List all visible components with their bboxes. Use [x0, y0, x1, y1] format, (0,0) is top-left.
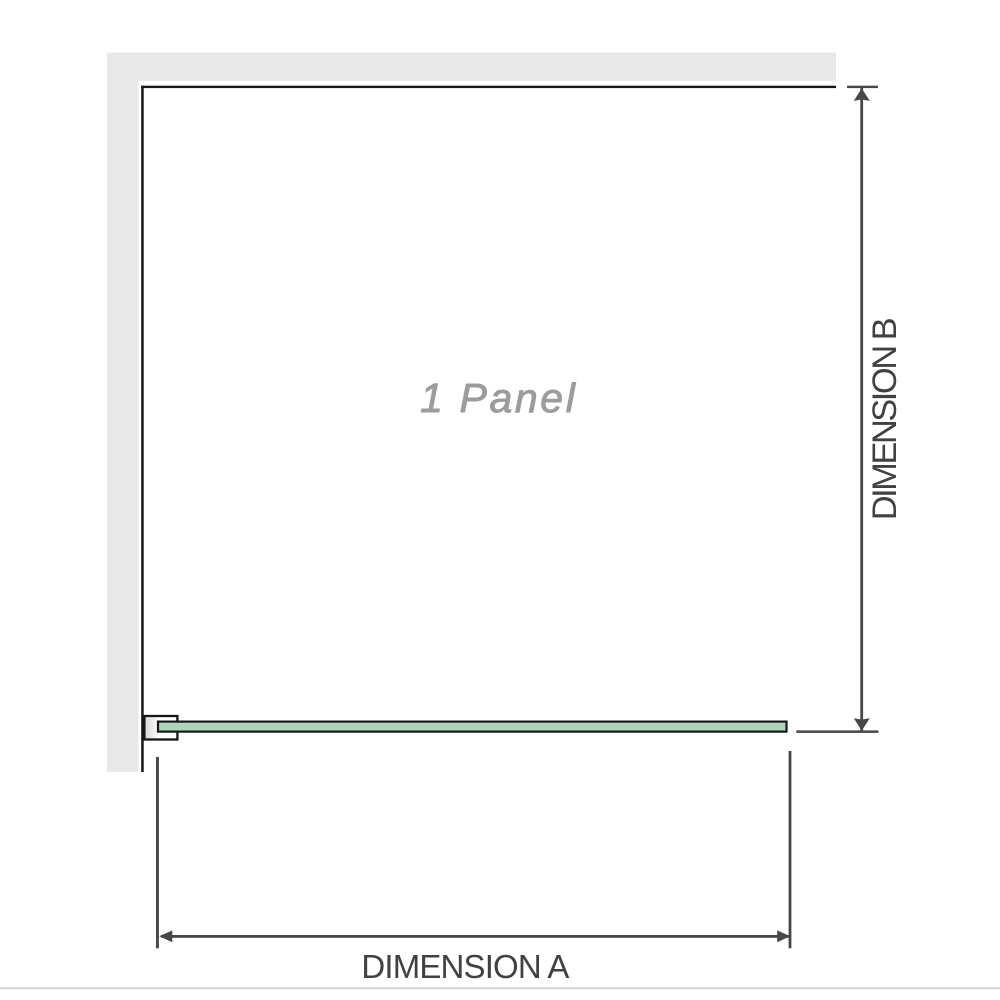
- svg-text:DIMENSION A: DIMENSION A: [361, 948, 569, 985]
- svg-text:DIMENSION B: DIMENSION B: [866, 317, 904, 520]
- svg-text:1 Panel: 1 Panel: [420, 375, 577, 421]
